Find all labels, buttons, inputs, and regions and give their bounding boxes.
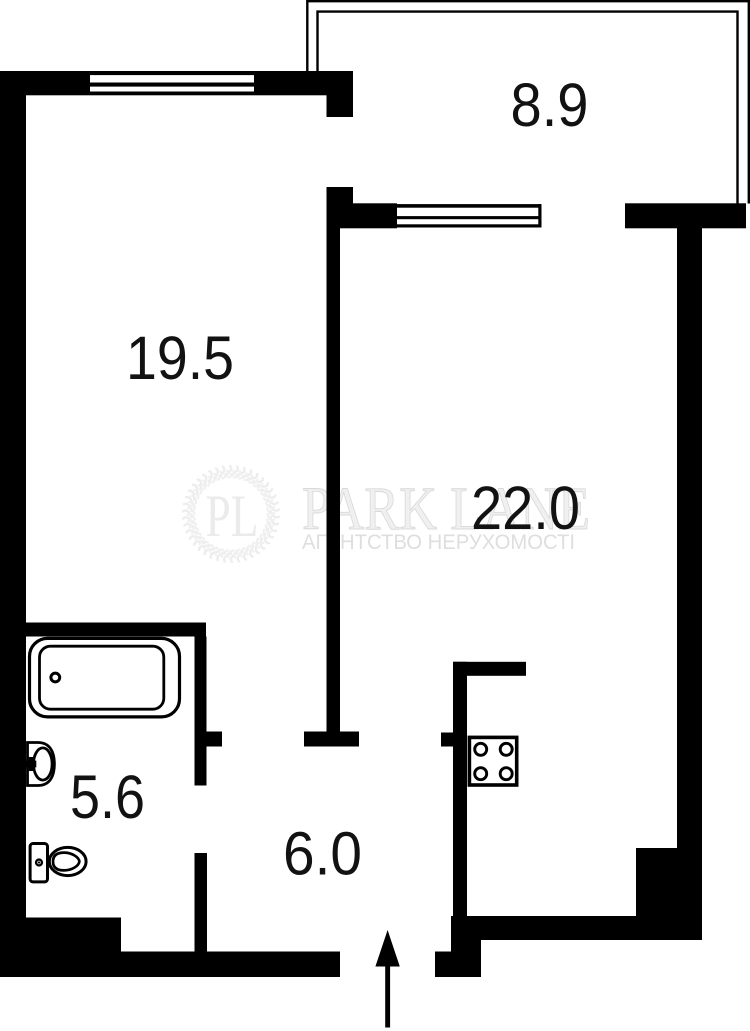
svg-text:22.0: 22.0 <box>471 474 580 542</box>
svg-text:6.0: 6.0 <box>283 820 362 888</box>
svg-text:5.6: 5.6 <box>70 763 145 831</box>
svg-text:8.9: 8.9 <box>511 71 589 139</box>
svg-text:19.5: 19.5 <box>126 324 234 392</box>
svg-text:PL: PL <box>206 483 259 549</box>
